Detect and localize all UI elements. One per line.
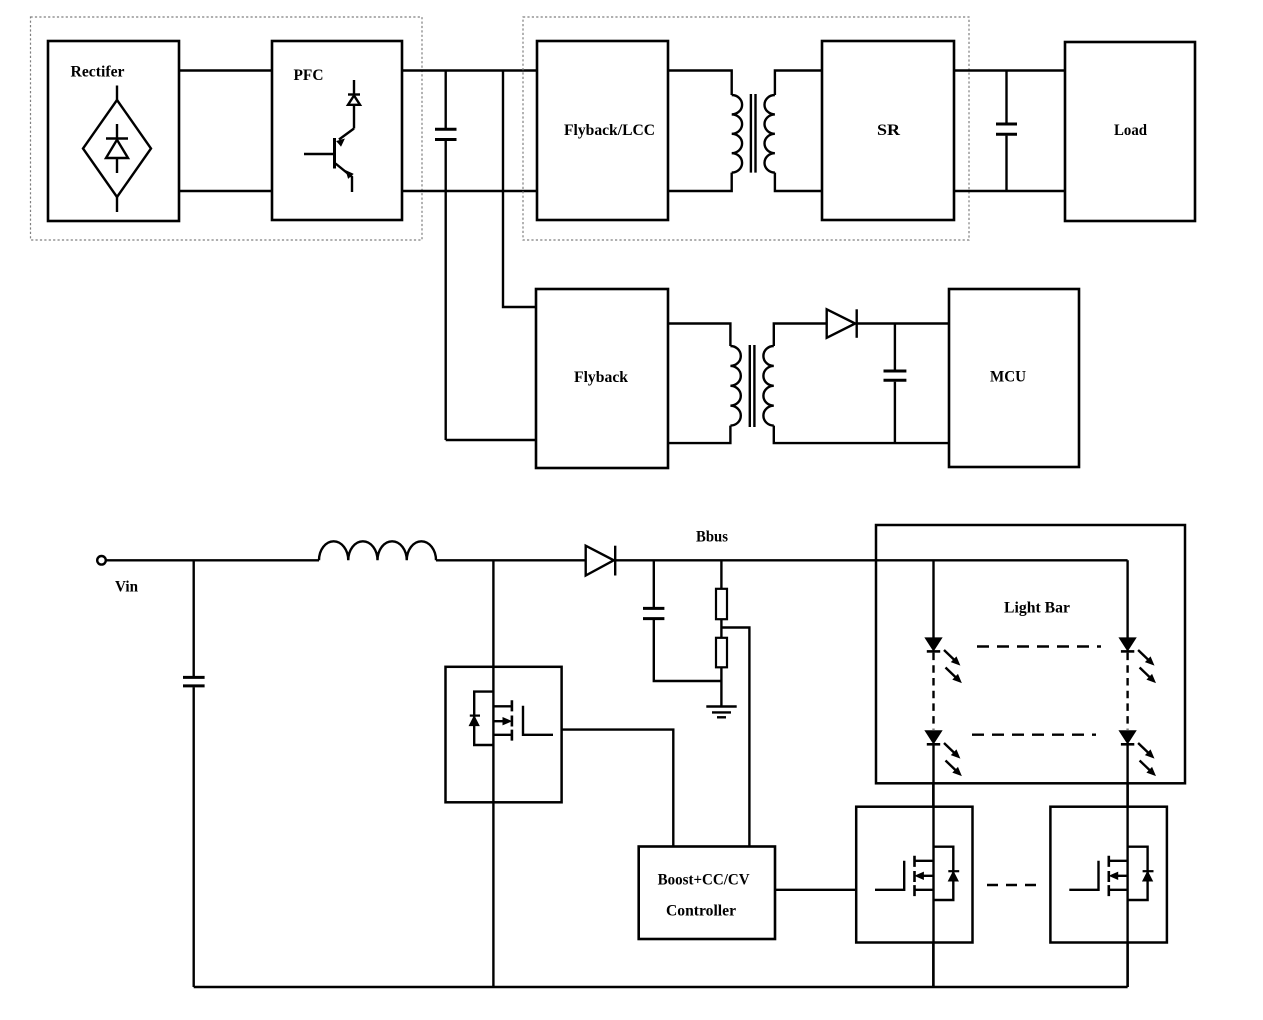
svg-text:Bbus: Bbus bbox=[696, 529, 728, 546]
svg-text:Controller: Controller bbox=[666, 903, 736, 920]
svg-text:Light Bar: Light Bar bbox=[1004, 600, 1070, 617]
svg-text:PFC: PFC bbox=[294, 67, 324, 84]
svg-text:MCU: MCU bbox=[990, 369, 1026, 386]
svg-text:Rectifer: Rectifer bbox=[71, 64, 125, 81]
svg-text:Flyback/LCC: Flyback/LCC bbox=[564, 122, 655, 139]
svg-text:SR: SR bbox=[877, 122, 901, 139]
svg-text:Boost+CC/CV: Boost+CC/CV bbox=[658, 872, 750, 889]
svg-text:Flyback: Flyback bbox=[574, 369, 628, 386]
svg-text:Load: Load bbox=[1114, 122, 1147, 139]
svg-text:Vin: Vin bbox=[115, 579, 138, 596]
